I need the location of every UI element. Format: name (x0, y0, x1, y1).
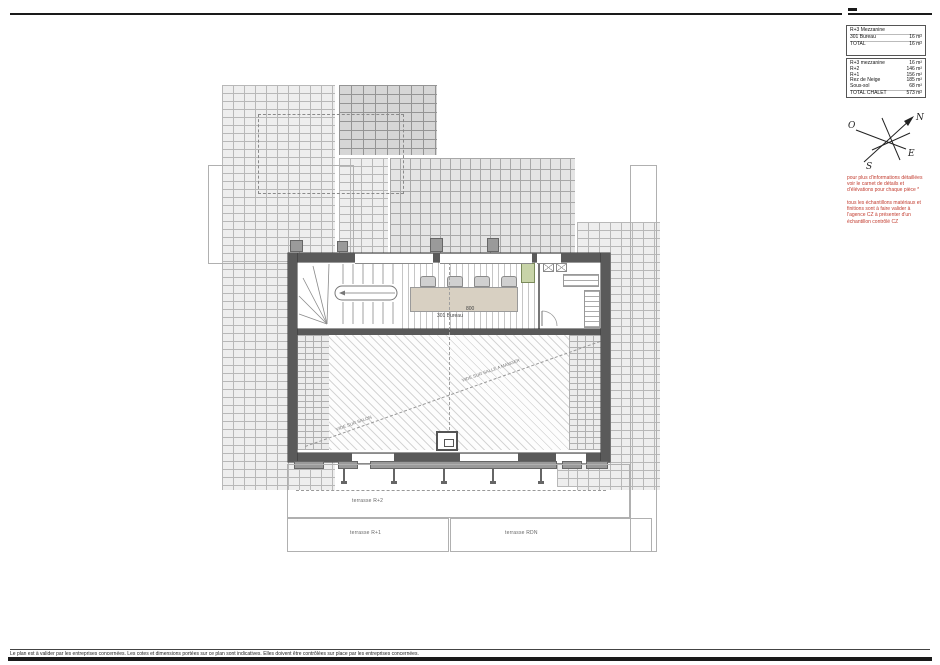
compass-s: S (866, 162, 872, 170)
chair (474, 276, 490, 287)
sill-tab (337, 241, 348, 252)
fixture-xbox (543, 263, 554, 272)
cabinet-green (521, 263, 535, 283)
row-value: 573 m² (906, 91, 922, 97)
dimension-label: 800 (466, 306, 474, 312)
footer-bar (8, 657, 932, 661)
partition-wall (538, 262, 540, 329)
desk-table (410, 287, 518, 312)
terrace-r1-label: terrasse R+1 (350, 530, 381, 536)
terrace-r2-outline (287, 464, 630, 518)
compass-rose: N E S O (846, 108, 936, 170)
terrace-rdn-outline (450, 518, 652, 552)
wall-west (288, 253, 297, 462)
sill-tab (487, 238, 499, 252)
window-north-2 (440, 253, 532, 264)
staircase (297, 262, 402, 329)
window-north-1 (355, 253, 433, 264)
table-row: TOTAL CHALET 573 m² (850, 91, 922, 97)
fireplace-flue (436, 431, 458, 451)
flue-inner (444, 439, 454, 447)
top-rule-right (848, 13, 932, 15)
note-samples: tous les échantillons matériaux et finit… (847, 200, 925, 225)
sill-tab (430, 238, 443, 252)
axis-centerline (449, 262, 450, 450)
row-label: TOTAL CHALET (850, 91, 887, 97)
context-outline-right (630, 165, 657, 552)
chair (420, 276, 436, 287)
door-swing (541, 310, 558, 327)
row-label: TOTAL (850, 42, 866, 48)
note-details: pour plus d'informations détaillées voir… (847, 175, 925, 194)
fixture-xbox (556, 263, 567, 272)
table-row: TOTAL 16 m² (850, 42, 922, 48)
area-table-mezzanine: R+3 Mezzanine 301 Bureau 16 m² TOTAL 16 … (846, 25, 926, 56)
sill-tab (290, 240, 303, 252)
wall-east (601, 253, 610, 462)
compass-n: N (915, 113, 925, 123)
area-table-chalet: R+3 mezzanine 16 m² R+2 146 m² R+1 156 m… (846, 58, 926, 98)
terrace-r2-label: terrasse R+2 (352, 498, 383, 504)
stone-band-left (297, 335, 329, 450)
footer-hairline (10, 649, 930, 650)
top-rule-tick (848, 8, 857, 11)
row-label: 301 Bureau (850, 35, 876, 41)
stone-band-right (569, 335, 601, 450)
top-rule-left (10, 13, 842, 15)
window-north-3 (537, 253, 561, 264)
row-label: R+3 Mezzanine (850, 28, 885, 34)
compass-o: O (848, 121, 856, 131)
compass-e: E (907, 149, 915, 159)
chair (501, 276, 517, 287)
shelf-low (563, 274, 599, 287)
drawing-sheet: 301 Bureau 800 VIDE SUR SALON VIDE SUR S… (0, 0, 940, 665)
hidden-outline-dashed (258, 114, 404, 194)
shelf-tall (584, 290, 600, 328)
row-value: 16 m² (909, 42, 922, 48)
terrace-rdn-label: terrasse RDN (505, 530, 538, 536)
row-value: 16 m² (909, 35, 922, 41)
roof-plane-mid-right (390, 158, 575, 253)
